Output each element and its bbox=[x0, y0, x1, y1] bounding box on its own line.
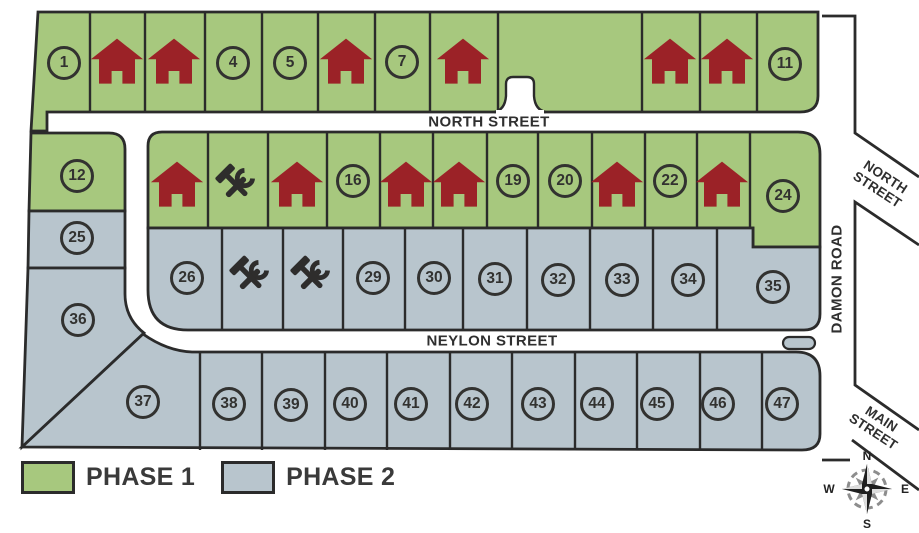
site-plan-map: 1 4 5 7 11 12 16 19 20 22 24 25 26 29 30… bbox=[0, 0, 919, 533]
lot-42-marker: 42 bbox=[455, 387, 489, 421]
compass-north-label: N bbox=[863, 449, 872, 463]
house-icon bbox=[147, 38, 201, 86]
lot-12-marker: 12 bbox=[60, 159, 94, 193]
lot-41-marker: 41 bbox=[394, 387, 428, 421]
traffic-island bbox=[783, 337, 815, 349]
lot-46-marker: 46 bbox=[701, 387, 735, 421]
lot-45-marker: 45 bbox=[640, 387, 674, 421]
house-icon bbox=[432, 161, 486, 209]
lot-37-marker: 37 bbox=[126, 385, 160, 419]
house-icon bbox=[270, 161, 324, 209]
house-icon bbox=[643, 38, 697, 86]
lot-39-marker: 39 bbox=[274, 388, 308, 422]
house-icon bbox=[700, 38, 754, 86]
compass-south-label: S bbox=[863, 517, 871, 531]
phase2-swatch bbox=[221, 461, 275, 494]
phase2-label: PHASE 2 bbox=[286, 463, 395, 492]
road-edge-damon-north bbox=[822, 16, 919, 177]
phase1-swatch bbox=[21, 461, 75, 494]
house-icon bbox=[90, 38, 144, 86]
construction-icon bbox=[226, 254, 276, 300]
lot-38-marker: 38 bbox=[212, 387, 246, 421]
damon-road-label: DAMON ROAD bbox=[829, 225, 846, 334]
lot-29-marker: 29 bbox=[356, 261, 390, 295]
lot-7-marker: 7 bbox=[385, 45, 419, 79]
lot-35-marker: 35 bbox=[756, 270, 790, 304]
lot-24-marker: 24 bbox=[766, 179, 800, 213]
lot-40-marker: 40 bbox=[333, 387, 367, 421]
legend-item-phase1: PHASE 1 bbox=[21, 461, 195, 494]
lot-19-marker: 19 bbox=[496, 164, 530, 198]
lot-16-marker: 16 bbox=[336, 164, 370, 198]
lot-5-marker: 5 bbox=[273, 46, 307, 80]
lot-34-marker: 34 bbox=[671, 263, 705, 297]
house-icon bbox=[150, 161, 204, 209]
construction-icon bbox=[287, 254, 337, 300]
lot-36-marker: 36 bbox=[61, 303, 95, 337]
lot-1-marker: 1 bbox=[47, 46, 81, 80]
neylon-street-label: NEYLON STREET bbox=[426, 333, 557, 350]
house-icon bbox=[319, 38, 373, 86]
legend: PHASE 1 PHASE 2 bbox=[21, 461, 395, 494]
lot-43-marker: 43 bbox=[521, 387, 555, 421]
north-street-label: NORTH STREET bbox=[428, 114, 549, 131]
lot-32-marker: 32 bbox=[541, 263, 575, 297]
phase1-label: PHASE 1 bbox=[86, 463, 195, 492]
lot-44-marker: 44 bbox=[580, 387, 614, 421]
lot-30-marker: 30 bbox=[417, 261, 451, 295]
lot-22-marker: 22 bbox=[653, 164, 687, 198]
lot-26-marker: 26 bbox=[170, 261, 204, 295]
compass-east-label: E bbox=[901, 482, 909, 496]
lot-31-marker: 31 bbox=[478, 262, 512, 296]
house-icon bbox=[379, 161, 433, 209]
road-edge-damon-mid bbox=[855, 202, 919, 430]
lot-33-marker: 33 bbox=[605, 263, 639, 297]
house-icon bbox=[436, 38, 490, 86]
lot-4-marker: 4 bbox=[216, 46, 250, 80]
house-icon bbox=[695, 161, 749, 209]
house-icon bbox=[590, 161, 644, 209]
compass-west-label: W bbox=[823, 482, 834, 496]
construction-icon bbox=[212, 162, 262, 208]
lot-25-marker: 25 bbox=[60, 221, 94, 255]
legend-item-phase2: PHASE 2 bbox=[221, 461, 395, 494]
lot-20-marker: 20 bbox=[548, 164, 582, 198]
lot-47-marker: 47 bbox=[765, 387, 799, 421]
lot-11-marker: 11 bbox=[768, 47, 802, 81]
